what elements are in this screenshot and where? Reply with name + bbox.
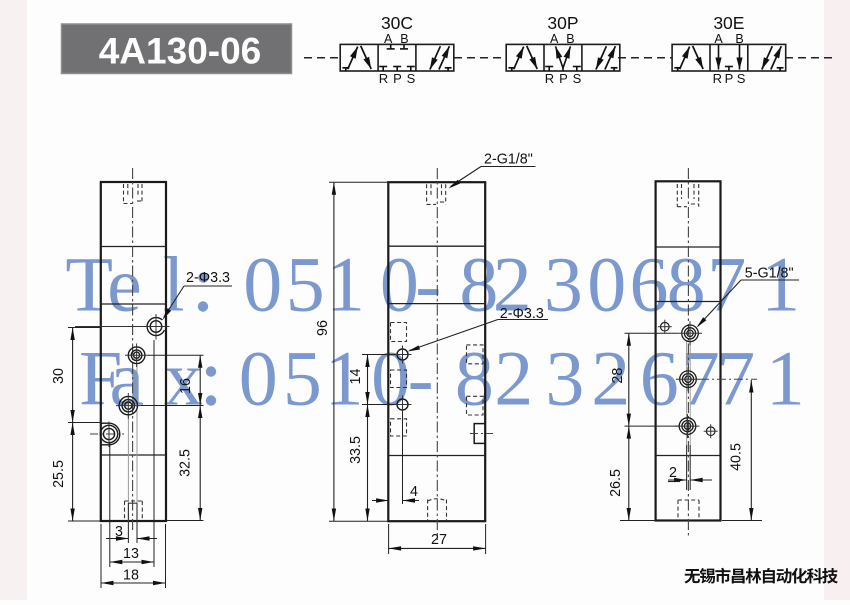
svg-text:27: 27 [431,532,447,548]
svg-text:B: B [400,32,408,46]
svg-text:14: 14 [348,369,364,385]
svg-text:40.5: 40.5 [729,443,745,471]
svg-text:P: P [393,71,402,86]
svg-text:A: A [550,32,559,46]
svg-text:13: 13 [123,546,139,562]
svg-text:4: 4 [410,484,418,500]
svg-text:96: 96 [315,320,331,336]
svg-text:28: 28 [610,368,626,384]
svg-text:16: 16 [178,378,194,394]
svg-text:A: A [714,32,723,46]
svg-text:R: R [713,71,722,86]
svg-text:18: 18 [123,568,139,584]
svg-text:2-Φ3.3: 2-Φ3.3 [186,270,230,286]
svg-text:3: 3 [115,524,123,540]
svg-text:33.5: 33.5 [348,436,364,464]
svg-text:P: P [559,71,568,86]
svg-text:S: S [737,71,746,86]
svg-text:30: 30 [51,368,67,384]
svg-text:A: A [384,32,393,46]
svg-text:2: 2 [669,465,677,481]
svg-text:2-G1/8": 2-G1/8" [484,152,533,168]
svg-text:Tel0510-82306871: Tel0510-82306871 [65,241,800,328]
svg-text:P: P [725,71,734,86]
svg-text:R: R [379,71,388,86]
svg-text:B: B [735,32,743,46]
svg-text:S: S [407,71,416,86]
svg-text:26.5: 26.5 [608,469,624,497]
svg-text:S: S [573,71,582,86]
svg-text:32.5: 32.5 [178,449,194,477]
svg-text:5-G1/8": 5-G1/8" [745,266,794,282]
svg-text:B: B [566,32,574,46]
svg-text:25.5: 25.5 [51,460,67,488]
svg-text:30P: 30P [547,13,578,33]
svg-text:R: R [545,71,554,86]
svg-text:4A130-06: 4A130-06 [99,31,262,72]
svg-text:30E: 30E [713,13,744,33]
svg-text:30C: 30C [381,13,413,33]
